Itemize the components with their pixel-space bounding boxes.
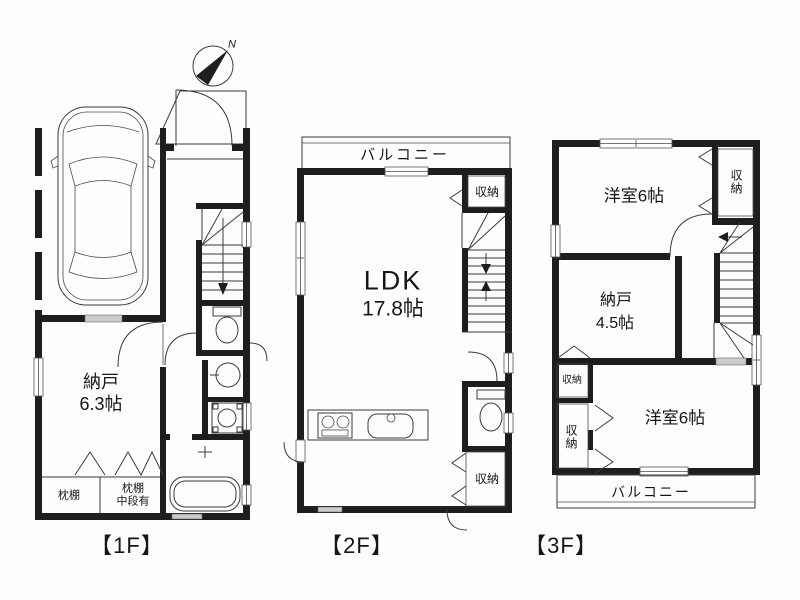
room-label-1f-storage-name: 納戸 bbox=[83, 373, 119, 391]
car-top-view bbox=[51, 107, 155, 305]
washbasin-1f bbox=[210, 363, 240, 387]
closet-label-1f-right-line2: 中段有 bbox=[117, 497, 150, 508]
porch-outline bbox=[156, 91, 246, 144]
floor-label-3f: 【3F】 bbox=[524, 535, 598, 557]
closet-label-2f-bottom: 収納 bbox=[475, 473, 499, 485]
room-label-2f-ldk-name: LDK bbox=[364, 268, 423, 295]
closet-label-3f-mid: 収納 bbox=[562, 376, 582, 386]
room-label-3f-bedroom-top: 洋室6帖 bbox=[604, 188, 664, 205]
closet-label-1f-left: 枕棚 bbox=[58, 491, 80, 502]
window-symbols-2f bbox=[296, 167, 513, 512]
closet-label-3f-left: 収納 bbox=[565, 424, 577, 450]
balcony-label-2f: バルコニー bbox=[360, 148, 450, 163]
window-symbols-1f bbox=[34, 222, 251, 519]
door-arc-3f-hall bbox=[670, 214, 712, 257]
closet-top-right-3f bbox=[699, 149, 753, 216]
room-label-3f-bedroom-bottom: 洋室6帖 bbox=[645, 410, 705, 427]
toilet-1f bbox=[213, 307, 241, 343]
floorplan-sheet: N 納戸 6.3帖 枕棚 枕棚 中段有 【1F】 バルコニー 収納 LDK 17… bbox=[0, 0, 800, 600]
washing-machine-1f bbox=[212, 403, 243, 433]
floor-1f-plan bbox=[34, 46, 267, 520]
kitchen-counter-2f bbox=[308, 410, 428, 440]
closet-bottom-2f bbox=[447, 452, 505, 530]
room-label-3f-storage-size: 4.5帖 bbox=[596, 316, 634, 332]
balcony-label-3f: バルコニー bbox=[611, 485, 691, 499]
room-label-1f-storage-size: 6.3帖 bbox=[79, 395, 122, 413]
closet-label-1f-right-line1: 枕棚 bbox=[122, 484, 144, 495]
compass-north-label: N bbox=[228, 40, 236, 51]
room-label-2f-ldk-size: 17.8帖 bbox=[362, 299, 424, 320]
closet-doors-left-3f bbox=[557, 346, 613, 473]
compass-icon bbox=[193, 46, 233, 86]
floor-label-2f: 【2F】 bbox=[320, 535, 394, 557]
closet-label-3f-top-right: 収納 bbox=[730, 169, 742, 195]
bathtub-1f bbox=[170, 446, 240, 511]
stairs-2f bbox=[462, 213, 512, 332]
closet-label-2f-top: 収納 bbox=[475, 186, 499, 198]
room-label-3f-storage-name: 納戸 bbox=[600, 293, 632, 309]
stairs-1f bbox=[202, 209, 243, 295]
floor-label-1f: 【1F】 bbox=[90, 535, 164, 557]
